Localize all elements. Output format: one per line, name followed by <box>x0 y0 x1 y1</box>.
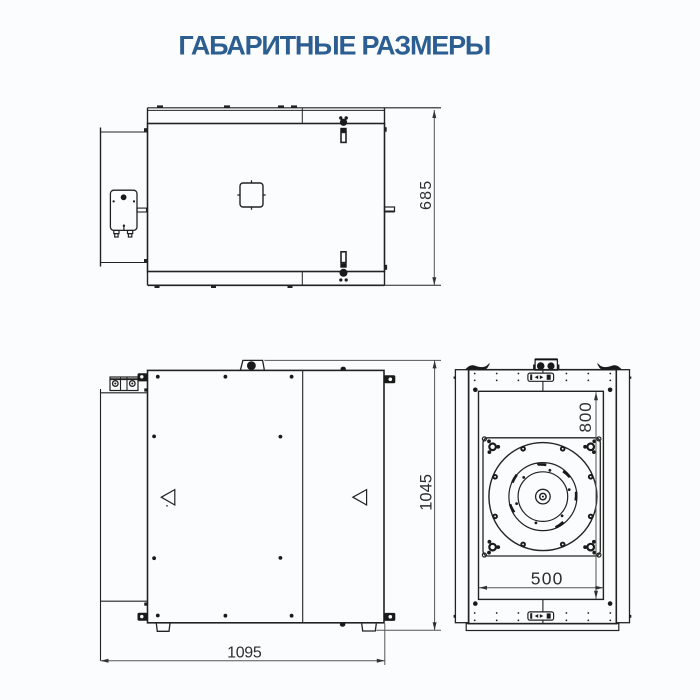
svg-text:ГАБАРИТНЫЕ РАЗМЕРЫ: ГАБАРИТНЫЕ РАЗМЕРЫ <box>178 30 490 60</box>
svg-text:1095: 1095 <box>227 644 262 661</box>
svg-text:1045: 1045 <box>418 474 436 511</box>
svg-text:685: 685 <box>418 180 435 210</box>
svg-text:500: 500 <box>531 568 564 588</box>
svg-text:800: 800 <box>576 401 595 432</box>
